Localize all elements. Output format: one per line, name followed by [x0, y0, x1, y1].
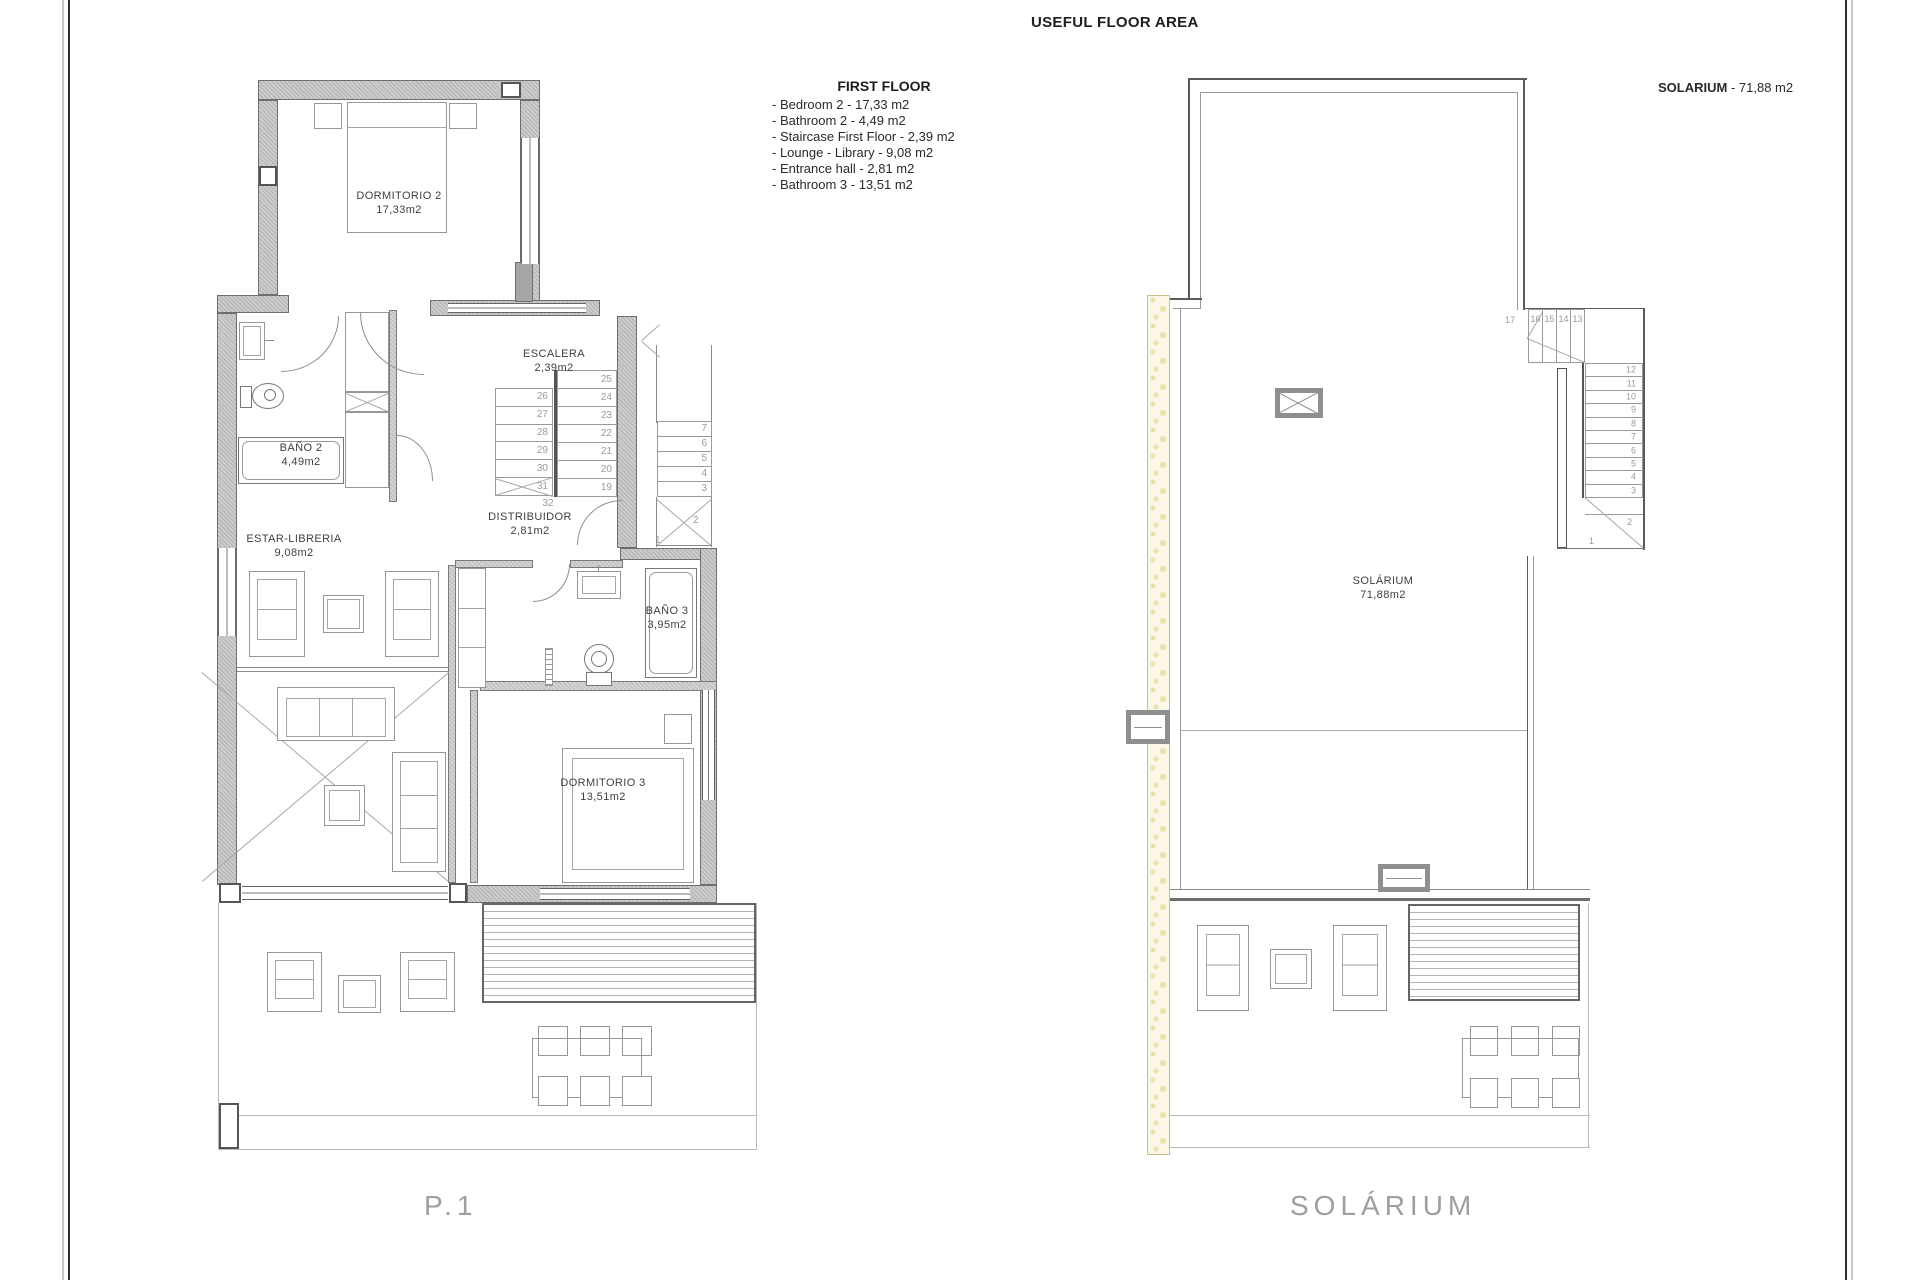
pillar [449, 883, 467, 903]
armchair [249, 571, 305, 657]
partition-wall [448, 565, 456, 883]
parapet-line [1188, 78, 1190, 300]
toilet-bowl-inner [264, 389, 276, 401]
stair-step: 7 [658, 422, 711, 437]
stair-step: 27 [496, 407, 552, 425]
dining-chair [580, 1076, 610, 1106]
room-area: 17,33m2 [356, 203, 441, 217]
parapet-line [1523, 78, 1525, 310]
room-area: 9,08m2 [246, 546, 341, 560]
stair-arrow [641, 341, 660, 358]
parapet-line [1200, 92, 1201, 309]
stair-wall [1533, 556, 1534, 890]
room-divider [237, 671, 448, 672]
stair-number: 2 [1627, 518, 1632, 527]
stair-outline [1643, 308, 1645, 550]
terrace-edge [218, 1149, 757, 1150]
room-area: 13,51m2 [560, 790, 645, 804]
toilet-bowl-inner [591, 651, 607, 667]
page-border-left-light [62, 0, 64, 1280]
solarium-header-area: - 71,88 m2 [1727, 80, 1793, 95]
solarium-header-label: SOLARIUM [1658, 80, 1727, 95]
room-area: 2,81m2 [488, 524, 572, 538]
wall-segment [258, 100, 278, 295]
terrace-armchair [400, 952, 455, 1012]
stair-edge [656, 345, 657, 423]
room-area: 2,39m2 [523, 361, 585, 375]
stair-step: 20 [558, 461, 616, 479]
stair-step: 11 [1586, 377, 1642, 390]
stair-number: 1 [1589, 537, 1594, 546]
dining-chair [1470, 1078, 1498, 1108]
terrace-armchair [1333, 925, 1387, 1011]
stair-step: 9 [1586, 404, 1642, 417]
sliding-door [242, 886, 448, 900]
stair-step: 7 [1586, 431, 1642, 444]
window [540, 888, 690, 900]
pillar [219, 883, 241, 903]
stair-step: 22 [558, 425, 616, 443]
room-label-estar: ESTAR-LIBRERIA 9,08m2 [246, 532, 341, 560]
legend-item: - Staircase First Floor - 2,39 m2 [772, 129, 955, 144]
page-border-left-dark [68, 0, 70, 1280]
sink [577, 571, 621, 599]
room-area: 3,95m2 [646, 618, 689, 632]
room-label-solarium: SOLÁRIUM 71,88m2 [1353, 574, 1414, 602]
terrace-edge [1588, 903, 1589, 1148]
partition-wall [570, 560, 623, 568]
solarium-header: SOLARIUM - 71,88 m2 [1658, 80, 1793, 95]
legend-title: FIRST FLOOR [837, 78, 930, 94]
parapet-line [1200, 92, 1518, 93]
stair-step: 21 [558, 443, 616, 461]
legend-item: - Lounge - Library - 9,08 m2 [772, 145, 933, 160]
terrace-armchair [1197, 925, 1249, 1011]
legend-item: - Bathroom 2 - 4,49 m2 [772, 113, 906, 128]
legend-item: - Bedroom 2 - 17,33 m2 [772, 97, 909, 112]
room-area: 71,88m2 [1353, 588, 1414, 602]
nightstand [664, 714, 692, 744]
page-border-right-dark [1845, 0, 1847, 1280]
chimney-shaft [515, 262, 533, 302]
toilet-tank [240, 386, 252, 408]
stair-step: 10 [1586, 391, 1642, 404]
stair-step: 29 [496, 442, 552, 460]
room-label-distribuidor: DISTRIBUIDOR 2,81m2 [488, 510, 572, 538]
stair-inner-wall [1557, 368, 1567, 548]
stair-step: 3 [658, 482, 711, 496]
staircase-up-right-flight: 25242322212019 [557, 370, 617, 497]
sofa [277, 687, 395, 741]
stair-step: 6 [658, 437, 711, 452]
wood-deck [482, 903, 756, 1003]
stair-rail [1582, 363, 1584, 498]
parapet-line [1517, 92, 1518, 310]
terrace-wall [1170, 898, 1590, 901]
wall-segment [217, 295, 289, 313]
solarium-stair-flight: 1211109876543 [1585, 363, 1643, 498]
side-table [324, 785, 365, 826]
legend-item: - Entrance hall - 2,81 m2 [772, 161, 914, 176]
stair-step: 23 [558, 407, 616, 425]
room-divider [237, 667, 448, 668]
staircase-down-flight: 76543 [657, 421, 712, 497]
toilet-tank [586, 672, 612, 686]
stair-number: 1 [655, 536, 661, 546]
stair-number-winder: 17 [1505, 316, 1515, 325]
wall-segment [258, 80, 540, 100]
page-border-right-light [1851, 0, 1853, 1280]
stair-step: 6 [1586, 444, 1642, 457]
inner-boundary [1180, 308, 1181, 889]
terrace-edge [1170, 1147, 1590, 1148]
room-area: 4,49m2 [280, 455, 323, 469]
partition-wall [455, 560, 533, 568]
room-label-dormitorio2: DORMITORIO 2 17,33m2 [356, 189, 441, 217]
stair-step: 12 [1586, 364, 1642, 377]
stair-step: 16 [1529, 310, 1543, 362]
door-arc-bano2 [281, 316, 339, 372]
room-name: ESCALERA [523, 347, 585, 361]
room-name: DORMITORIO 3 [560, 776, 645, 790]
plan1-caption: P.1 [424, 1190, 477, 1222]
stair-step: 5 [1586, 458, 1642, 471]
window [521, 138, 539, 264]
stair-arrow [641, 324, 660, 341]
wall-segment [620, 548, 712, 560]
stair-step: 15 [1543, 310, 1557, 362]
stair-step: 26 [496, 389, 552, 407]
mid-line [1180, 730, 1527, 731]
pillar [219, 1103, 239, 1149]
vent-box [1378, 864, 1430, 892]
room-name: BAÑO 3 [646, 604, 689, 618]
dining-chair [622, 1076, 652, 1106]
cabinet-x [345, 392, 389, 412]
bed [562, 748, 694, 883]
chaise [392, 752, 446, 872]
stair-step: 4 [658, 467, 711, 482]
sink [239, 322, 265, 360]
room-name: DISTRIBUIDOR [488, 510, 572, 524]
stair-number-landing: 32 [536, 499, 560, 509]
terrace-edge [756, 903, 757, 1150]
stair-edge [711, 345, 712, 423]
terrace-table [338, 975, 381, 1013]
room-label-bano3: BAÑO 3 3,95m2 [646, 604, 689, 632]
pillar [259, 166, 277, 186]
stair-step-line [1585, 514, 1643, 515]
dining-chair [538, 1076, 568, 1106]
room-name: ESTAR-LIBRERIA [246, 532, 341, 546]
stair-step: 24 [558, 389, 616, 407]
terrace-edge [218, 1115, 757, 1116]
pillar [501, 82, 521, 98]
window [702, 690, 715, 800]
stair-step: 5 [658, 452, 711, 467]
window [218, 548, 236, 636]
wood-deck [1408, 904, 1580, 1001]
side-table [323, 595, 364, 633]
stair-step: 30 [496, 460, 552, 478]
stair-step: 13 [1571, 310, 1584, 362]
room-label-bano2: BAÑO 2 4,49m2 [280, 441, 323, 469]
door-arc-estar [397, 435, 433, 481]
room-label-dormitorio3: DORMITORIO 3 13,51m2 [560, 776, 645, 804]
nightstand [449, 103, 477, 129]
vent-box [1126, 710, 1170, 744]
room-name: BAÑO 2 [280, 441, 323, 455]
floor-plan-sheet: USEFUL FLOOR AREA FIRST FLOOR - Bedroom … [0, 0, 1920, 1280]
dining-chair [1552, 1078, 1580, 1108]
door-arc-distribuidor [577, 500, 622, 545]
partition-wall [470, 690, 478, 883]
stair-step: 4 [1586, 471, 1642, 484]
terrace-table [1270, 949, 1312, 989]
parapet-jog [1173, 308, 1200, 309]
terrace-edge [1170, 1115, 1590, 1116]
closet [458, 568, 486, 688]
dining-chair [1511, 1078, 1539, 1108]
terrace-armchair [267, 952, 322, 1012]
plan2-caption: SOLÁRIUM [1290, 1190, 1476, 1222]
stair-edge [656, 545, 712, 546]
stair-number: 2 [693, 516, 699, 526]
stair-step: 8 [1586, 418, 1642, 431]
solarium-stair-top-row: 16151413 [1528, 309, 1585, 363]
stair-step: 3 [1586, 485, 1642, 497]
room-label-escalera: ESCALERA 2,39m2 [523, 347, 585, 375]
wardrobe [345, 412, 389, 488]
stair-step: 28 [496, 425, 552, 443]
nightstand [314, 103, 342, 129]
room-name: DORMITORIO 2 [356, 189, 441, 203]
towel-radiator [545, 648, 553, 686]
parapet-jog [1170, 298, 1202, 300]
chimney-box [1275, 388, 1323, 418]
stair-wall [1527, 556, 1528, 890]
room-name: SOLÁRIUM [1353, 574, 1414, 588]
armchair [385, 571, 439, 657]
stair-outline [1557, 548, 1645, 549]
page-title: USEFUL FLOOR AREA [1031, 14, 1199, 31]
window [448, 303, 586, 313]
door-arc-bano3 [533, 564, 570, 602]
stair-step: 19 [558, 479, 616, 496]
parapet-line [1188, 78, 1527, 80]
legend-item: - Bathroom 3 - 13,51 m2 [772, 177, 913, 192]
stair-edge [711, 497, 712, 547]
